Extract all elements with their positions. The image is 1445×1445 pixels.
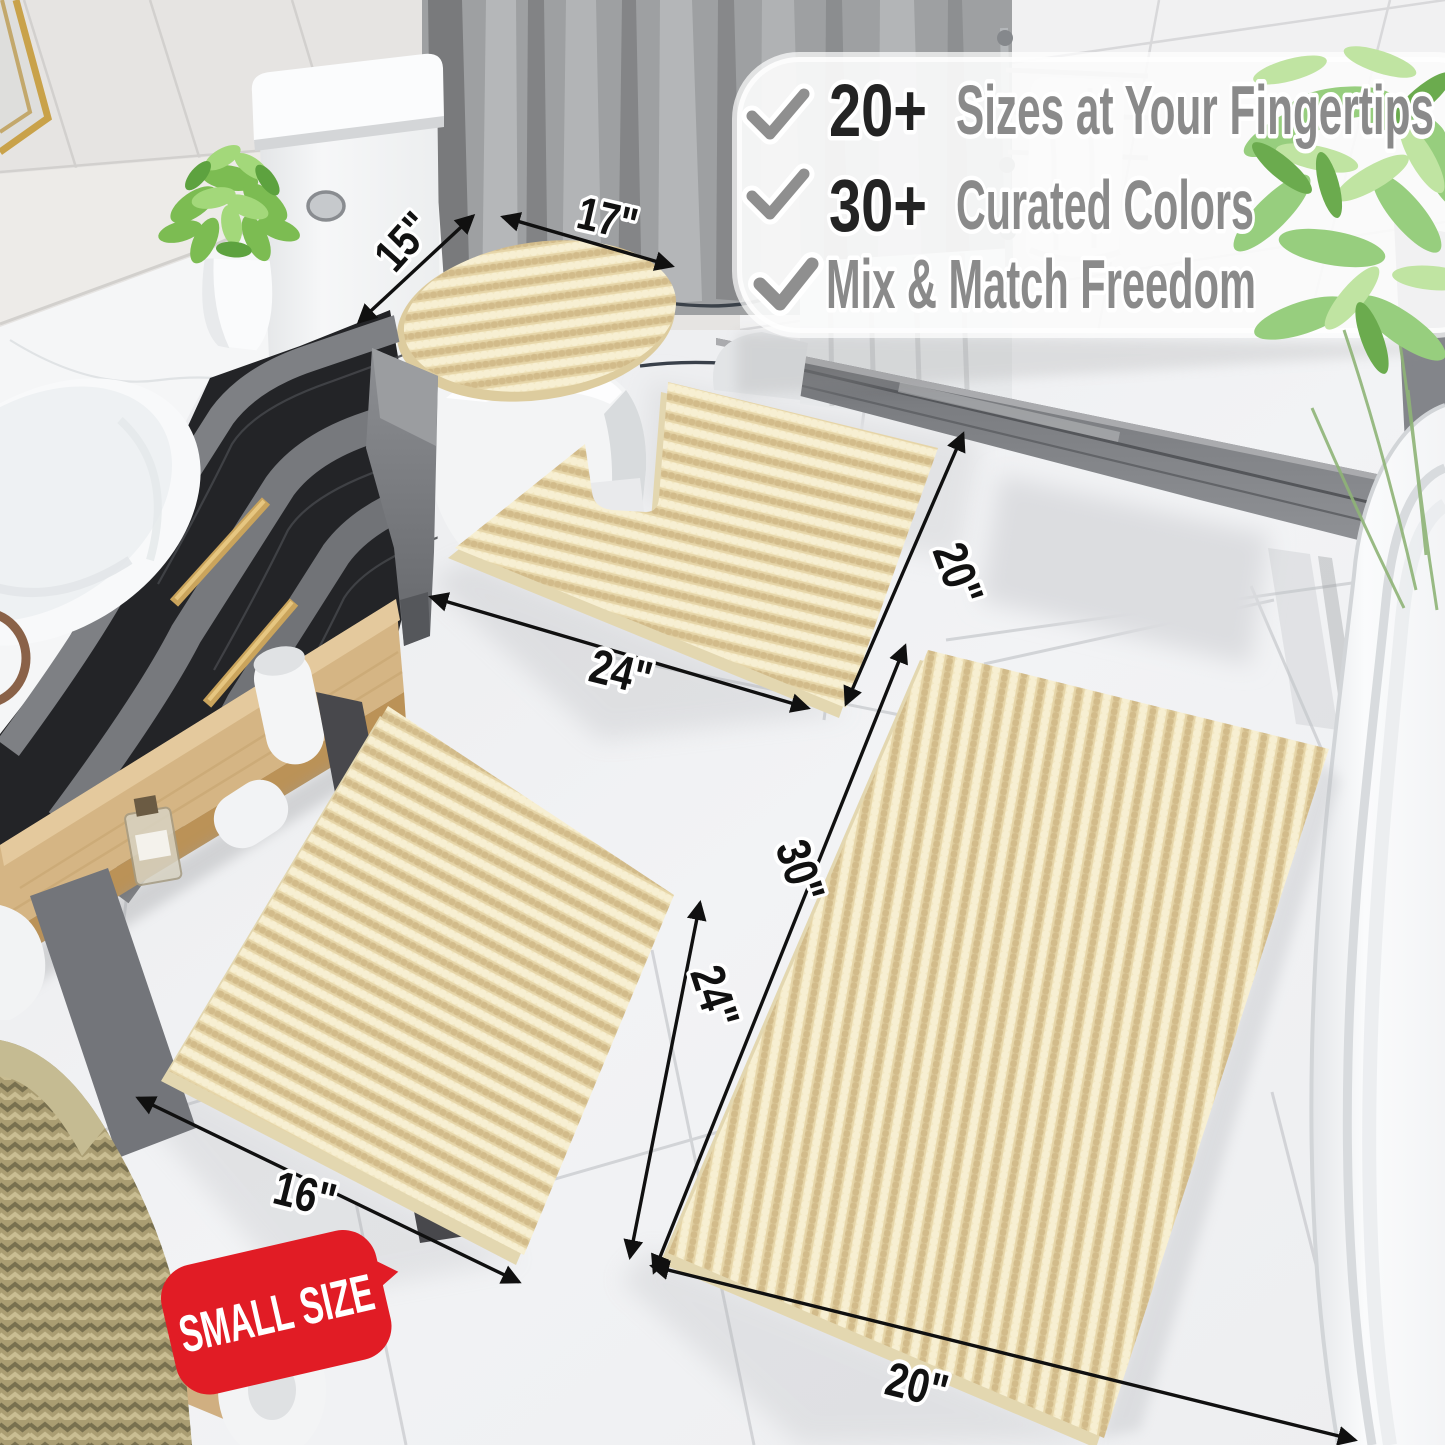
svg-text:Curated Colors: Curated Colors: [956, 166, 1254, 244]
svg-text:20+: 20+: [829, 69, 927, 152]
svg-text:30+: 30+: [829, 164, 927, 247]
svg-text:Sizes at Your Fingertips: Sizes at Your Fingertips: [956, 71, 1434, 149]
svg-text:Mix & Match Freedom: Mix & Match Freedom: [826, 245, 1256, 323]
